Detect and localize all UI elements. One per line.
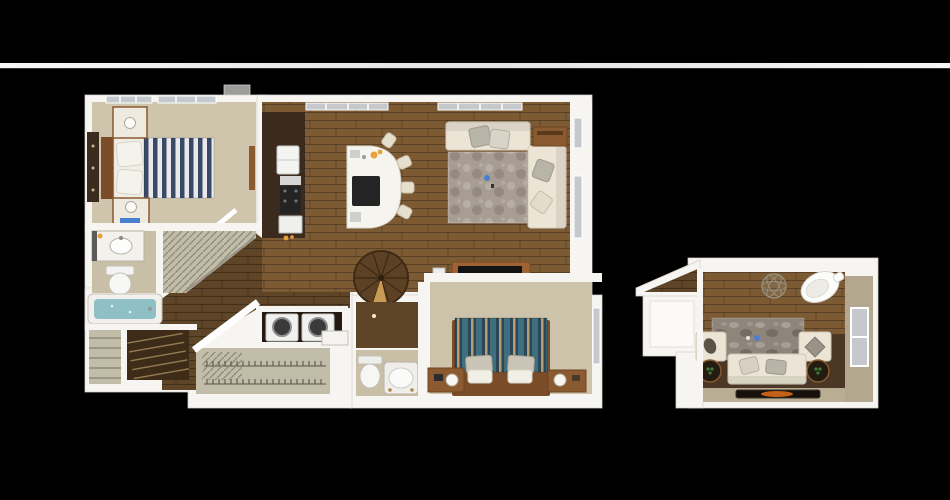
pillow bbox=[765, 359, 786, 375]
pillow bbox=[468, 125, 492, 148]
range bbox=[280, 186, 301, 214]
faucet bbox=[119, 236, 123, 240]
counter bbox=[280, 176, 301, 185]
spiral-staircase bbox=[354, 251, 408, 305]
linen-closet bbox=[89, 330, 127, 384]
nightstand-right bbox=[548, 370, 586, 392]
counter bbox=[322, 331, 348, 345]
main-floor-plan: Main level floor plan bbox=[85, 85, 602, 408]
bathtub bbox=[88, 294, 162, 324]
floor-plan-canvas: 3D apartment floor plan rendering, two-l… bbox=[0, 0, 950, 500]
bonus-closet bbox=[650, 301, 694, 347]
toilet bbox=[358, 356, 382, 388]
fire-glow bbox=[761, 391, 793, 397]
bedroom-2 bbox=[424, 273, 602, 396]
hanging-clothes bbox=[206, 376, 324, 384]
dishwasher bbox=[279, 216, 302, 233]
garden-tub bbox=[384, 362, 418, 394]
window bbox=[306, 103, 388, 110]
tv bbox=[458, 266, 522, 274]
window bbox=[574, 176, 582, 238]
headboard bbox=[101, 137, 114, 199]
bedroom-door bbox=[249, 146, 255, 190]
bedroom-1 bbox=[87, 96, 256, 228]
nightstand-left bbox=[428, 368, 464, 392]
entry-stairs bbox=[127, 330, 189, 380]
nightstand-top bbox=[113, 107, 147, 138]
dressing-area bbox=[356, 302, 418, 348]
rug-decor bbox=[484, 175, 490, 181]
window bbox=[574, 118, 582, 148]
side-table-right bbox=[807, 360, 829, 382]
striped-duvet bbox=[144, 138, 214, 198]
top-divider-strip bbox=[0, 63, 950, 68]
wire-sphere-decor bbox=[762, 273, 786, 298]
pillow bbox=[489, 129, 510, 149]
floor-plan-rendering: 3D apartment floor plan rendering, two-l… bbox=[0, 0, 950, 500]
curved-island bbox=[347, 146, 401, 228]
area-rug bbox=[448, 152, 527, 223]
lamp bbox=[125, 118, 136, 129]
fireplace bbox=[736, 390, 820, 398]
sofa bbox=[728, 354, 806, 384]
rug-decor bbox=[754, 335, 760, 341]
bonus-room bbox=[696, 262, 873, 402]
end-table bbox=[533, 127, 567, 146]
pillow bbox=[468, 370, 492, 383]
window bbox=[106, 96, 152, 103]
lamp bbox=[126, 202, 137, 213]
pillow bbox=[116, 169, 143, 195]
clock bbox=[554, 374, 566, 386]
vanity-sink bbox=[92, 231, 144, 261]
window bbox=[593, 308, 600, 364]
bed-1 bbox=[101, 137, 214, 199]
hanging-clothes bbox=[206, 358, 324, 366]
island-faucet bbox=[362, 155, 366, 159]
clock bbox=[446, 374, 458, 386]
left-wall bbox=[697, 268, 703, 402]
window bbox=[158, 96, 216, 103]
island-cooktop bbox=[352, 176, 380, 206]
pillow bbox=[508, 370, 532, 383]
bed-2 bbox=[452, 318, 550, 396]
pillow bbox=[116, 141, 143, 167]
